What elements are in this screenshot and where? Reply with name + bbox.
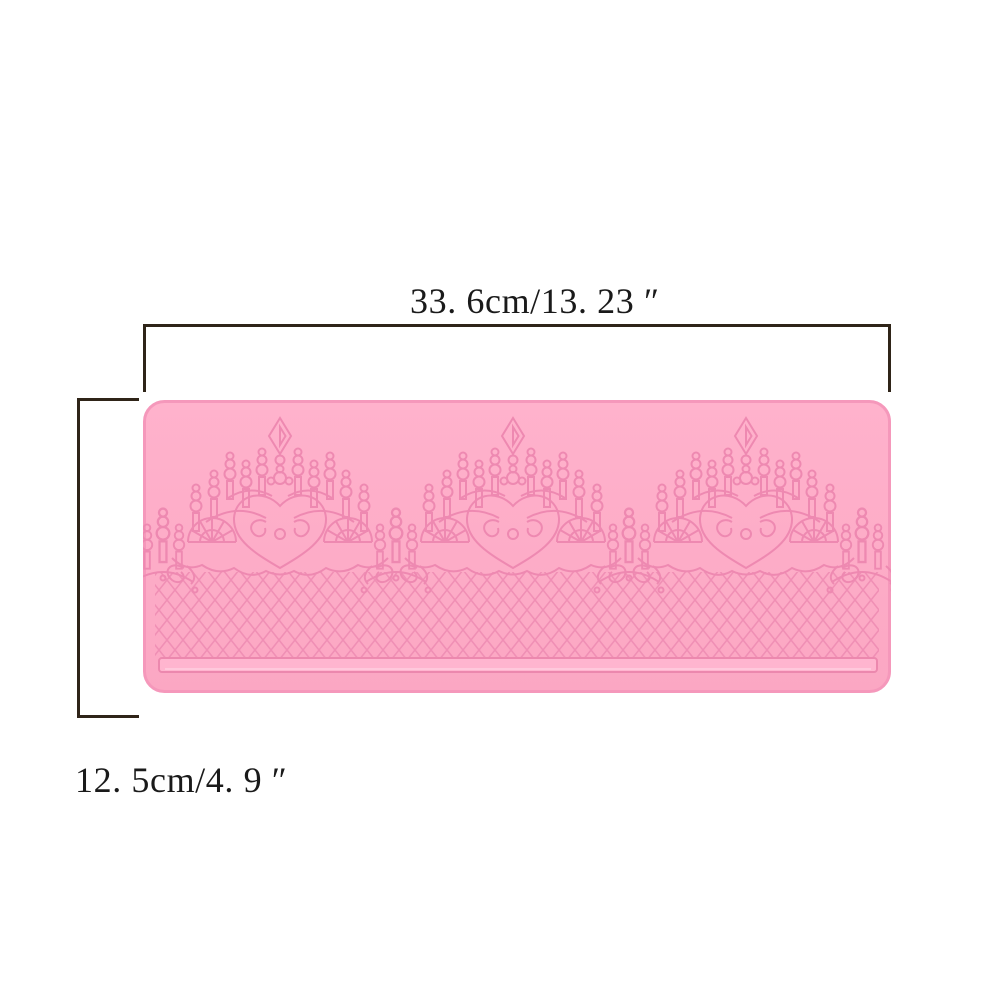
height-dimension-label: 12. 5cm/4. 9 ″	[75, 762, 287, 798]
lace-mold-photo	[143, 400, 891, 693]
width-dimension-bracket	[143, 324, 891, 392]
height-dimension-bracket	[77, 398, 139, 718]
bottom-groove-bar	[159, 658, 877, 672]
product-photo: 33. 6cm/13. 23 ″ 12. 5cm/4. 9 ″	[0, 0, 1001, 1001]
lattice-band	[155, 572, 879, 658]
width-dimension-label: 33. 6cm/13. 23 ″	[410, 283, 660, 319]
lace-mold-image	[143, 400, 891, 693]
